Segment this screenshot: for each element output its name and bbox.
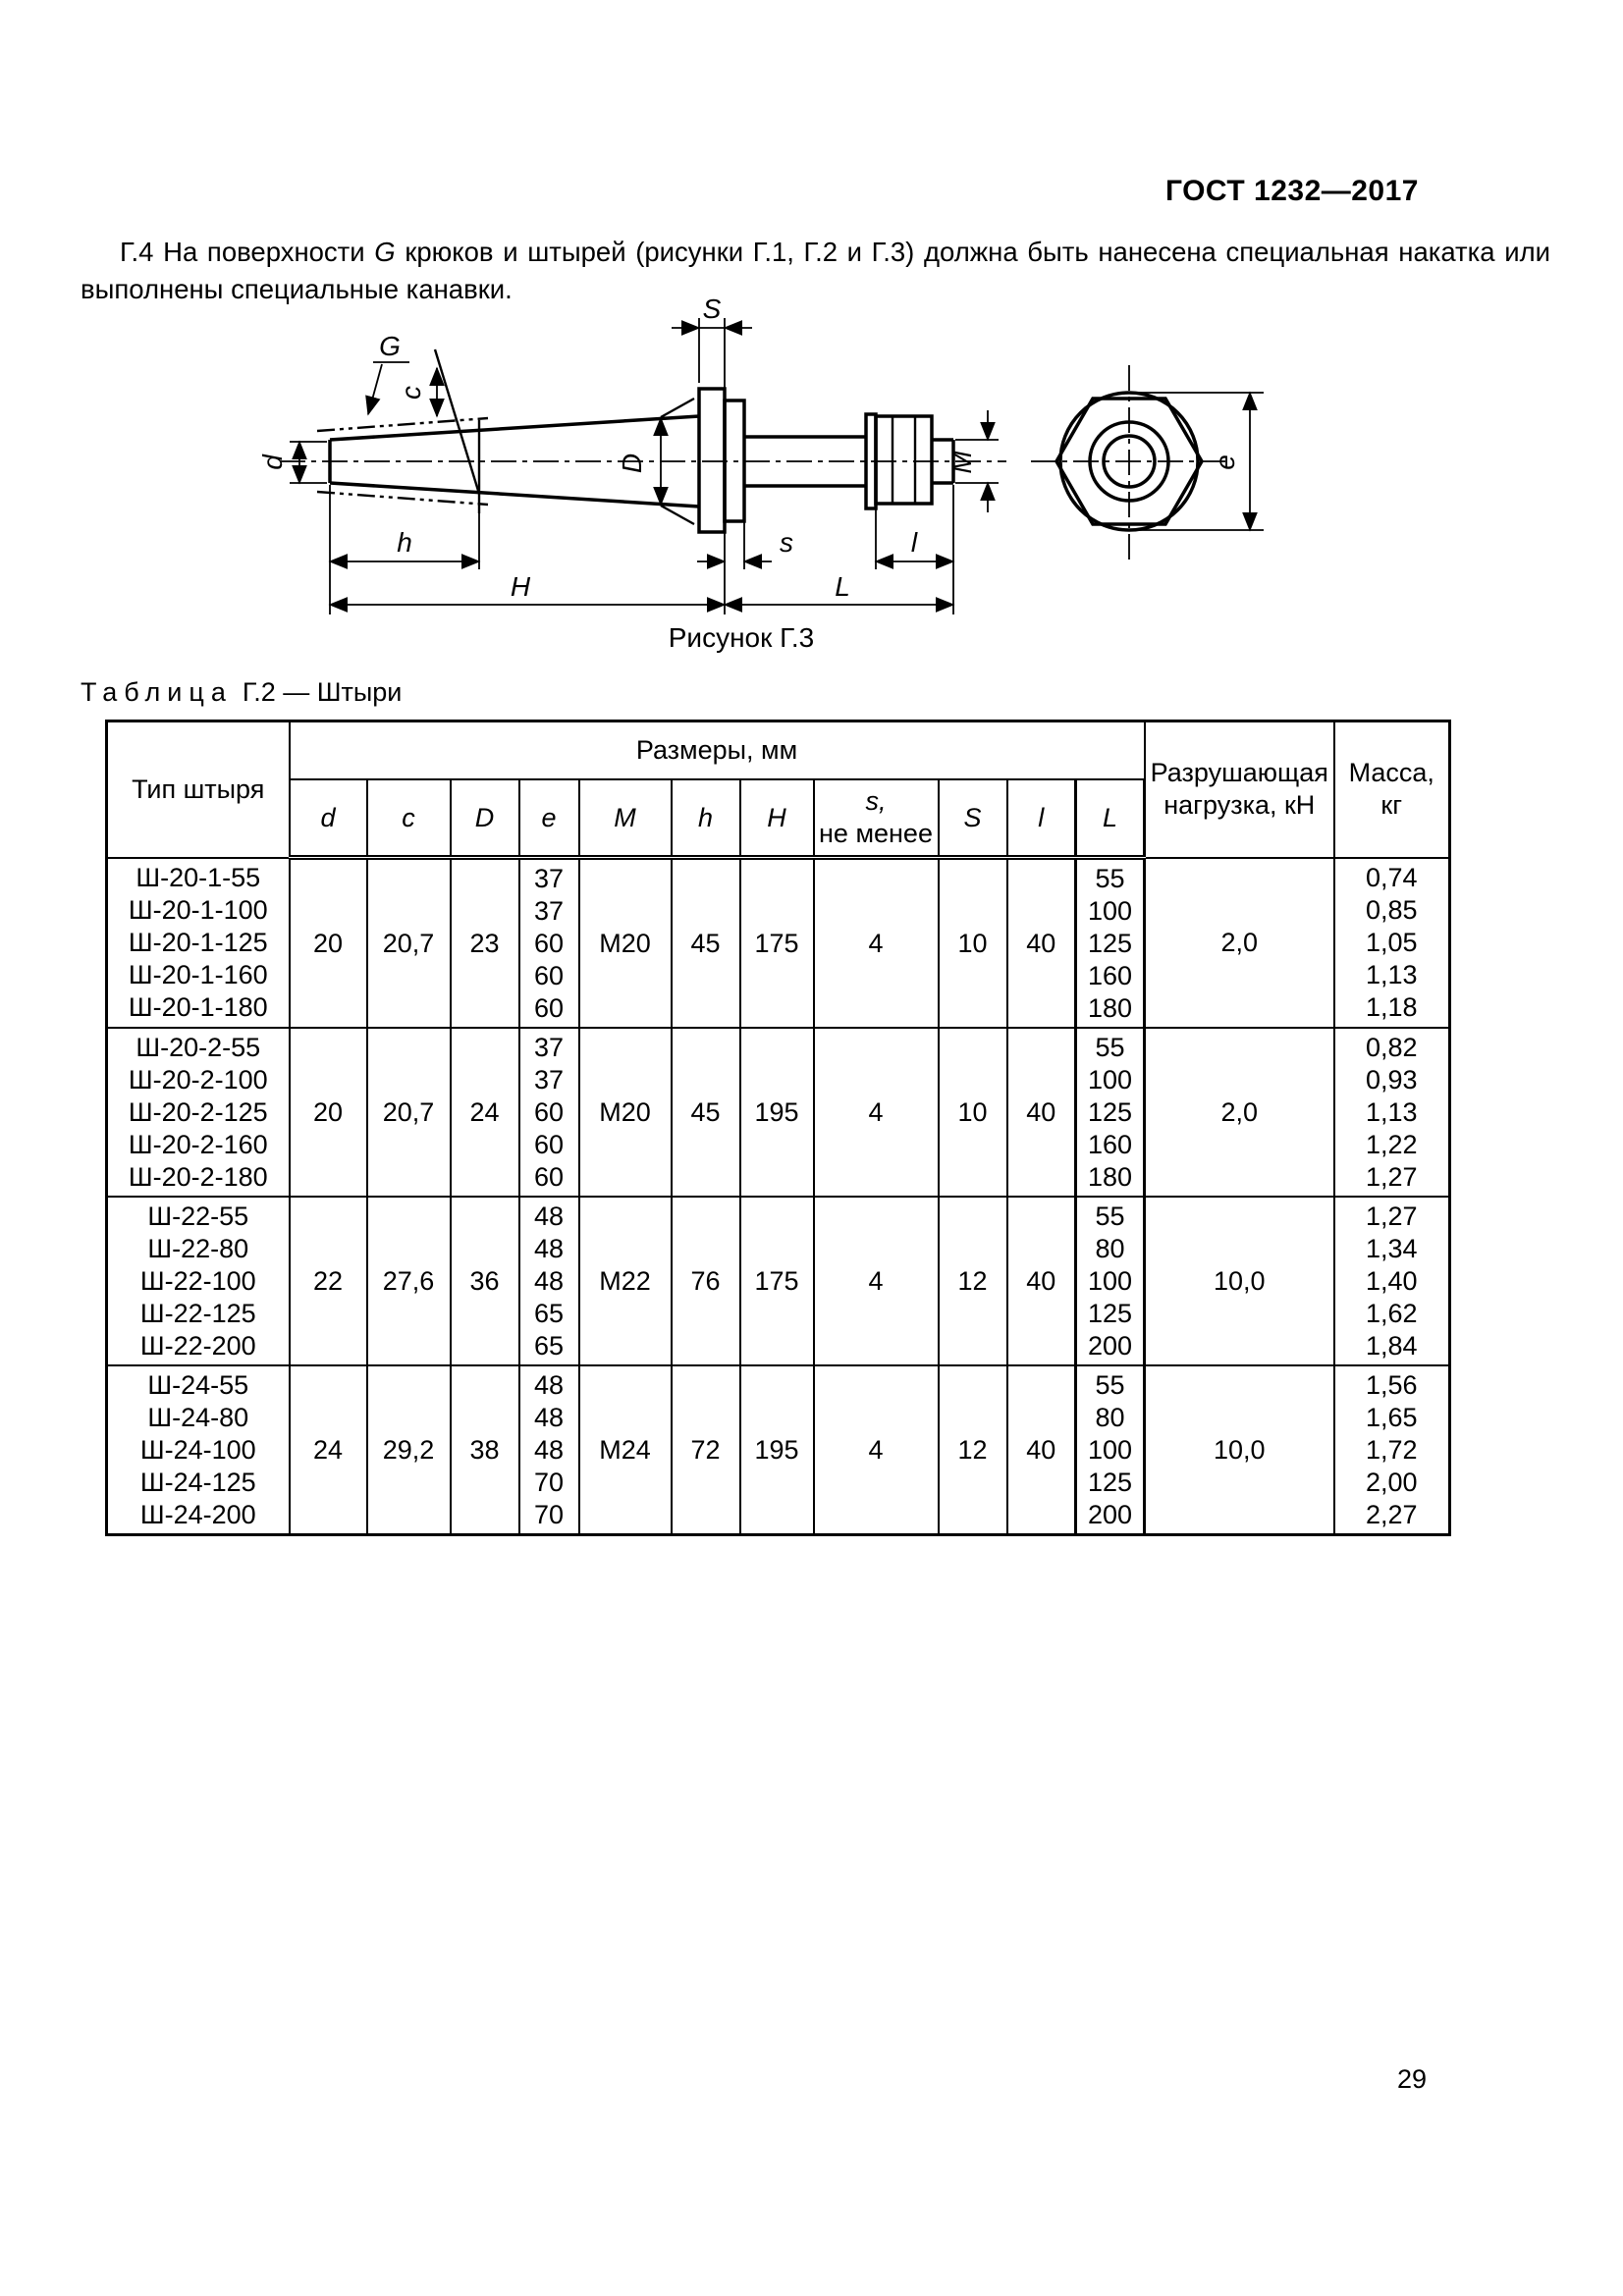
standard-reference: ГОСТ 1232—2017 [0, 175, 1419, 208]
cell-mass: 1,56 1,65 1,72 2,00 2,27 [1334, 1365, 1450, 1535]
col-header-e: e [519, 779, 579, 858]
cell-L: 55 80 100 125 200 [1076, 1365, 1145, 1535]
cell-d: 22 [290, 1197, 367, 1365]
cell-types: Ш-24-55 Ш-24-80 Ш-24-100 Ш-24-125 Ш-24-2… [107, 1365, 290, 1535]
cell-h: 45 [672, 858, 740, 1029]
document-page: ГОСТ 1232—2017 Г.4 На поверхности G крюк… [0, 0, 1623, 2296]
cell-load: 2,0 [1145, 858, 1334, 1029]
label-S: S [703, 294, 722, 324]
col-header-H: H [740, 779, 814, 858]
table-row: Ш-22-55 Ш-22-80 Ш-22-100 Ш-22-125 Ш-22-2… [107, 1197, 1450, 1365]
cell-M: М20 [579, 858, 672, 1029]
cell-h: 72 [672, 1365, 740, 1535]
col-header-h: h [672, 779, 740, 858]
cell-s: 4 [814, 1028, 939, 1197]
knurl-zone-line [317, 492, 488, 505]
col-header-mass: Масса, кг [1334, 721, 1450, 858]
cell-c: 29,2 [367, 1365, 451, 1535]
cell-D: 36 [451, 1197, 519, 1365]
label-c: c [396, 386, 426, 400]
cell-s: 4 [814, 858, 939, 1029]
col-header-d: d [290, 779, 367, 858]
cell-s: 4 [814, 1365, 939, 1535]
label-s: s [780, 527, 793, 558]
s-min-note: не менее [819, 819, 933, 848]
cell-load: 2,0 [1145, 1028, 1334, 1197]
label-e: e [1210, 454, 1240, 470]
cell-D: 38 [451, 1365, 519, 1535]
cell-e: 48 48 48 65 65 [519, 1197, 579, 1365]
cell-M: М22 [579, 1197, 672, 1365]
label-d: d [257, 454, 288, 470]
cell-types: Ш-22-55 Ш-22-80 Ш-22-100 Ш-22-125 Ш-22-2… [107, 1197, 290, 1365]
label-h: h [397, 527, 412, 558]
pins-table: Тип штыря Размеры, мм Разрушающая нагруз… [105, 720, 1451, 1536]
figure-g3: G c d D S M h s l H L e [221, 224, 1321, 640]
cell-e: 48 48 48 70 70 [519, 1365, 579, 1535]
label-L: L [835, 571, 850, 602]
cell-S: 10 [939, 1028, 1007, 1197]
cell-types: Ш-20-1-55 Ш-20-1-100 Ш-20-1-125 Ш-20-1-1… [107, 858, 290, 1029]
cell-H: 175 [740, 858, 814, 1029]
cell-l: 40 [1007, 858, 1076, 1029]
cell-load: 10,0 [1145, 1365, 1334, 1535]
cell-H: 195 [740, 1028, 814, 1197]
cell-mass: 0,74 0,85 1,05 1,13 1,18 [1334, 858, 1450, 1029]
s-letter: s, [865, 786, 886, 816]
col-header-type: Тип штыря [107, 721, 290, 858]
page-number: 29 [1382, 2064, 1441, 2095]
col-header-M: M [579, 779, 672, 858]
col-header-L: L [1076, 779, 1145, 858]
label-l: l [911, 527, 918, 558]
label-D: D [617, 454, 647, 473]
cell-mass: 1,27 1,34 1,40 1,62 1,84 [1334, 1197, 1450, 1365]
col-header-S: S [939, 779, 1007, 858]
table-row: Ш-24-55 Ш-24-80 Ш-24-100 Ш-24-125 Ш-24-2… [107, 1365, 1450, 1535]
cell-d: 24 [290, 1365, 367, 1535]
table-title: ТаблицаГ.2 — Штыри [81, 677, 402, 708]
cell-S: 12 [939, 1197, 1007, 1365]
cell-L: 55 100 125 160 180 [1076, 1028, 1145, 1197]
cell-H: 175 [740, 1197, 814, 1365]
col-header-s-min: s,не менее [814, 779, 939, 858]
cell-D: 24 [451, 1028, 519, 1197]
cell-d: 20 [290, 1028, 367, 1197]
cell-L: 55 80 100 125 200 [1076, 1197, 1145, 1365]
cell-M: М24 [579, 1365, 672, 1535]
cell-h: 45 [672, 1028, 740, 1197]
cell-c: 20,7 [367, 1028, 451, 1197]
cell-l: 40 [1007, 1028, 1076, 1197]
cell-types: Ш-20-2-55 Ш-20-2-100 Ш-20-2-125 Ш-20-2-1… [107, 1028, 290, 1197]
cell-D: 23 [451, 858, 519, 1029]
cell-c: 20,7 [367, 858, 451, 1029]
col-header-l: l [1007, 779, 1076, 858]
cell-h: 76 [672, 1197, 740, 1365]
cell-H: 195 [740, 1365, 814, 1535]
cell-l: 40 [1007, 1197, 1076, 1365]
cell-M: М20 [579, 1028, 672, 1197]
table-row: Ш-20-1-55 Ш-20-1-100 Ш-20-1-125 Ш-20-1-1… [107, 858, 1450, 1029]
cell-load: 10,0 [1145, 1197, 1334, 1365]
label-G: G [379, 331, 401, 361]
col-header-D: D [451, 779, 519, 858]
cell-S: 12 [939, 1365, 1007, 1535]
col-header-c: c [367, 779, 451, 858]
knurl-zone-line [317, 418, 488, 431]
cell-s: 4 [814, 1197, 939, 1365]
cell-d: 20 [290, 858, 367, 1029]
label-M: M [947, 451, 977, 474]
col-group-sizes: Размеры, мм [290, 721, 1145, 780]
table-row: Ш-20-2-55 Ш-20-2-100 Ш-20-2-125 Ш-20-2-1… [107, 1028, 1450, 1197]
cell-c: 27,6 [367, 1197, 451, 1365]
col-header-load: Разрушающая нагрузка, кН [1145, 721, 1334, 858]
cell-l: 40 [1007, 1365, 1076, 1535]
cell-S: 10 [939, 858, 1007, 1029]
technical-drawing: G c d D S M h s l H L e [221, 224, 1321, 640]
cell-mass: 0,82 0,93 1,13 1,22 1,27 [1334, 1028, 1450, 1197]
cell-e: 37 37 60 60 60 [519, 1028, 579, 1197]
cell-L: 55 100 125 160 180 [1076, 858, 1145, 1029]
table-title-rest: Г.2 — Штыри [243, 677, 402, 707]
table-title-word: Таблица [81, 677, 233, 707]
cell-e: 37 37 60 60 60 [519, 858, 579, 1029]
figure-caption: Рисунок Г.3 [447, 622, 1036, 654]
label-H: H [511, 571, 531, 602]
